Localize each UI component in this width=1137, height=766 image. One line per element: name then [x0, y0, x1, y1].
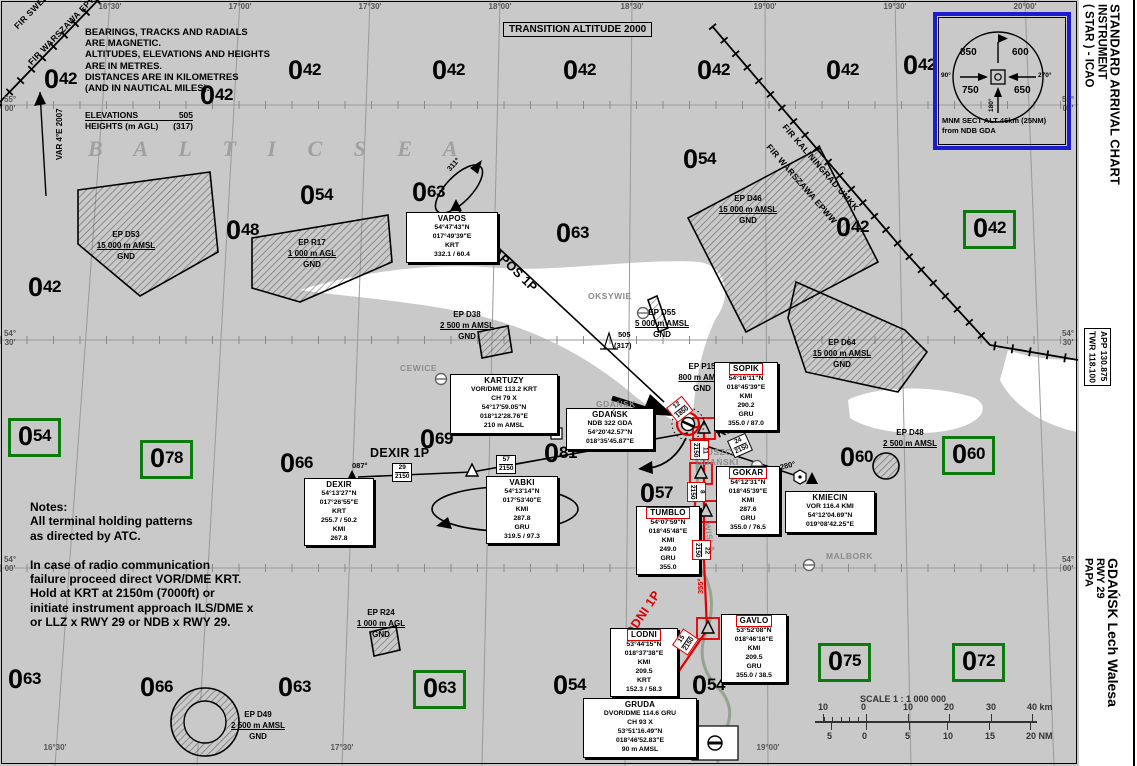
msa-value: 054: [683, 144, 716, 175]
scale-nm-tick: [909, 722, 910, 730]
navaid-box-line: 319.5 / 97.3: [488, 533, 556, 542]
latitude-label: 54°30': [2, 330, 18, 348]
fix-distance-altitude-box: 112150: [690, 440, 709, 460]
waypoint-name: DEXIR: [306, 480, 372, 490]
msa-value: 048: [226, 215, 259, 246]
msa-big-digit: 0: [226, 215, 241, 245]
msa-small-digits: 63: [23, 669, 41, 688]
place-name: CEWICE: [400, 363, 437, 373]
area-label-ep-d49: EP D492 500 m AMSLGND: [218, 710, 298, 742]
scale-nm-tick: [866, 722, 867, 730]
area-label-line: EP D64: [800, 338, 884, 349]
navaid-box-line: 017°26'55"E: [306, 499, 372, 508]
longitude-label: 19°00': [756, 744, 780, 753]
area-label-line: EP R17: [272, 238, 352, 249]
navaid-box-line: GRU: [723, 663, 785, 672]
msa-value: 042: [432, 55, 465, 86]
magnetic-note: BEARINGS, TRACKS AND RADIALSARE MAGNETIC…: [85, 27, 270, 94]
navaid-box-line: KRT: [306, 508, 372, 517]
msa-bearing-90: 90°: [941, 72, 951, 79]
procedure-note-line: Hold at KRT at 2150m (7000ft) or: [30, 586, 253, 600]
navaid-box-line: 54°20'42.57"N: [568, 429, 652, 438]
msa-value: 063: [8, 664, 41, 695]
msa-sector-sw: 750: [962, 85, 979, 96]
msa-value: 042: [28, 272, 61, 303]
scale-km-tick: [1032, 714, 1033, 722]
area-label-line: EP R24: [342, 608, 420, 619]
navaid-box-line: 54°12'31"N: [718, 479, 778, 488]
msa-bearing-180: 180°: [988, 99, 995, 112]
lat-minutes: 30': [2, 339, 18, 348]
route-label: 355°: [696, 578, 705, 594]
area-label-line: GND: [706, 216, 790, 227]
msa-value: 042: [903, 50, 936, 81]
navaid-box-line: VOR 116.4 KMI: [787, 503, 873, 512]
area-label-line: EP D53: [86, 230, 166, 241]
navaid-box-line: 290.2: [716, 402, 776, 411]
msa-small-digits: 54: [33, 426, 51, 445]
area-label-line: 15 000 m AMSL: [706, 205, 790, 216]
magnetic-note-line: ALTITUDES, ELEVATIONS AND HEIGHTS: [85, 49, 270, 60]
area-label-line: 2 500 m AMSL: [872, 439, 948, 450]
navaid-box-line: 54°12'04.69"N: [787, 512, 873, 521]
scale-nm-tick: [831, 722, 832, 730]
procedure-note-line: as directed by ATC.: [30, 529, 253, 543]
navaid-box-line: 018°12'28.76"E: [452, 413, 556, 422]
msa-value: 063: [413, 670, 466, 709]
page-edge-line: [1133, 0, 1135, 766]
msa-small-digits: 63: [427, 182, 445, 201]
scale-nm-label: 20 NM: [1026, 731, 1053, 741]
msa-small-digits: 66: [155, 677, 173, 696]
area-label-line: GND: [622, 330, 702, 341]
msa-value: 042: [826, 55, 859, 86]
scale-nm-tick: [947, 722, 948, 730]
msa-small-digits: 42: [988, 218, 1006, 237]
procedure-note-line: In case of radio communication: [30, 558, 253, 572]
msa-caption-line1: MNM SECT ALT 46km (25NM): [942, 116, 1046, 125]
navaid-box-line: 018°46'52.83"E: [585, 737, 695, 746]
area-label-line: GND: [272, 260, 352, 271]
scale-nm-tick: [1030, 722, 1031, 730]
navaid-box-line: 54°16'11"N: [716, 375, 776, 384]
area-label-line: EP D49: [218, 710, 298, 721]
star-chart-page: STANDARD ARRIVAL CHART INSTRUMENT ( STAR…: [0, 0, 1137, 766]
navaid-box-line: NDB 322 GDA: [568, 420, 652, 429]
navaid-box-line: 287.8: [488, 515, 556, 524]
msa-big-digit: 0: [563, 55, 578, 85]
waypoint-name: GDAŃSK: [568, 410, 652, 420]
navaid-box-line: KMI: [488, 506, 556, 515]
navaid-box-line: KMI: [716, 393, 776, 402]
scale-km-tick: [949, 714, 950, 722]
msa-small-digits: 60: [855, 447, 873, 466]
scale-nm-label: 15: [985, 731, 995, 741]
navaid-box-gokar: GOKAR54°12'31"N018°45'39"EKMI287.6GRU355…: [716, 466, 780, 535]
fix-altitude: 2150: [691, 443, 699, 457]
magnetic-note-line: BEARINGS, TRACKS AND RADIALS: [85, 27, 270, 38]
msa-value: 057: [640, 478, 673, 509]
navaid-box-line: KMI: [306, 526, 372, 535]
navaid-box-line: 54°13'27"N: [306, 490, 372, 499]
navaid-box-line: 355.0 / 76.5: [718, 524, 778, 533]
msa-big-digit: 0: [952, 439, 967, 469]
fix-distance: 57: [499, 456, 513, 465]
chart-title-line2: INSTRUMENT: [1095, 4, 1108, 464]
msa-value: 066: [140, 672, 173, 703]
navaid-box-line: CH 79 X: [452, 395, 556, 404]
msa-value: 063: [278, 672, 311, 703]
navaid-box-line: 355.0: [638, 564, 698, 573]
chart-code: PAPA: [1082, 558, 1094, 763]
navaid-box-dexir: DEXIR54°13'27"N017°26'55"EKRT255.7 / 50.…: [304, 478, 374, 546]
navaid-box-line: 249.0: [638, 546, 698, 555]
msa-big-digit: 0: [973, 213, 988, 243]
msa-value: 072: [952, 643, 1005, 682]
msa-big-digit: 0: [18, 421, 33, 451]
longitude-label: 19°30': [883, 3, 907, 12]
magnetic-variation-label: VAR 4°E 2007: [55, 108, 64, 160]
msa-value: 075: [818, 643, 871, 682]
area-label-line: 15 000 m AMSL: [800, 349, 884, 360]
msa-value: 054: [300, 180, 333, 211]
msa-small-digits: 42: [851, 217, 869, 236]
lat-minutes: 00': [2, 105, 18, 114]
area-label-line: GND: [86, 252, 166, 263]
msa-value: 042: [44, 64, 77, 95]
scale-km-label: 10: [903, 702, 913, 712]
scale-minor-tick: [849, 717, 850, 722]
msa-big-digit: 0: [683, 144, 698, 174]
area-label-line: 1 000 m AGL: [272, 249, 352, 260]
heights-label: HEIGHTS (m AGL): [85, 121, 158, 131]
elevations-label: ELEVATIONS: [85, 110, 138, 120]
waypoint-name: GAVLO: [736, 615, 773, 627]
procedure-note-line: initiate instrument approach ILS/DME x: [30, 601, 253, 615]
msa-big-digit: 0: [28, 272, 43, 302]
scale-km-label: 0: [861, 702, 866, 712]
msa-big-digit: 0: [150, 443, 165, 473]
msa-small-digits: 42: [841, 60, 859, 79]
frequency-box: APP 130.875 TWR 118.100: [1084, 328, 1111, 386]
navaid-box-line: KMI: [638, 537, 698, 546]
navaid-box-sopik: SOPIK54°16'11"N018°45'39"EKMI290.2GRU355…: [714, 362, 778, 431]
msa-big-digit: 0: [8, 664, 23, 694]
msa-big-digit: 0: [300, 180, 315, 210]
airport-title: GDAŃSK Lech Walesa RWY 29 PAPA: [1082, 558, 1120, 763]
navaid-box-line: DVOR/DME 114.6 GRU: [585, 710, 695, 719]
area-label-ep-d48: EP D482 500 m AMSL: [872, 428, 948, 450]
longitude-label: 17°30': [358, 3, 382, 12]
area-label-line: 15 000 m AMSL: [86, 241, 166, 252]
area-label-line: GND: [342, 630, 420, 641]
navaid-box-line: 54°07'59"N: [638, 519, 698, 528]
navaid-box-line: GRU: [718, 515, 778, 524]
fix-altitude: 2150: [499, 465, 513, 473]
msa-value: 054: [553, 670, 586, 701]
area-label-ep-d53: EP D5315 000 m AMSLGND: [86, 230, 166, 262]
waypoint-name: GOKAR: [729, 467, 768, 479]
area-label-line: EP D38: [428, 310, 506, 321]
navaid-box-line: 287.6: [718, 506, 778, 515]
navaid-box-line: 018°45'48"E: [638, 528, 698, 537]
msa-small-digits: 78: [165, 448, 183, 467]
area-label-line: EP D55: [622, 308, 702, 319]
lat-minutes: 00': [2, 565, 18, 574]
procedure-note-line: or LLZ x RWY 29 or NDB x RWY 29.: [30, 615, 253, 629]
navaid-box-kmiecin: KMIECINVOR 116.4 KMI54°12'04.69"N019°08'…: [785, 491, 875, 533]
area-label-ep-d38: EP D382 500 m AMSLGND: [428, 310, 506, 342]
navaid-box-line: 210 m AMSL: [452, 422, 556, 431]
procedure-note-line: All terminal holding patterns: [30, 514, 253, 528]
navaid-box-line: 018°45'39"E: [716, 384, 776, 393]
msa-big-digit: 0: [903, 50, 918, 80]
navaid-box-kartuzy: KARTUZYVOR/DME 113.2 KRTCH 79 X54°17'59.…: [450, 374, 558, 434]
area-label-ep-r17: EP R171 000 m AGLGND: [272, 238, 352, 270]
navaid-box-line: CH 93 X: [585, 719, 695, 728]
msa-small-digits: 57: [655, 483, 673, 502]
msa-sector-nw: 850: [960, 47, 977, 58]
area-label-ep-r24: EP R241 000 m AGLGND: [342, 608, 420, 640]
fix-distance-altitude-box: 572150: [496, 455, 516, 474]
chart-title-line1: STANDARD ARRIVAL CHART: [1107, 4, 1121, 464]
msa-big-digit: 0: [692, 670, 707, 700]
procedure-note-line: Notes:: [30, 500, 253, 514]
chart-title: STANDARD ARRIVAL CHART INSTRUMENT ( STAR…: [1082, 4, 1122, 464]
navaid-box-line: GRU: [488, 524, 556, 533]
fix-distance: 11: [699, 443, 708, 457]
runway-label: RWY 29: [1094, 558, 1106, 763]
longitude-label: 17°00': [228, 3, 252, 12]
route-label: DEXIR 1P: [370, 446, 429, 460]
twr-frequency: TWR 118.100: [1086, 331, 1097, 383]
waypoint-name: KMIECIN: [787, 493, 873, 503]
scale-nm-label: 5: [827, 731, 832, 741]
navaid-box-line: 54°13'14"N: [488, 488, 556, 497]
area-label-ep-d55: EP D555 000 m AMSLGND: [622, 308, 702, 340]
area-label-line: 2 500 m AMSL: [428, 321, 506, 332]
msa-value: 054: [8, 418, 61, 457]
msa-caption-line2: from NDB GDA: [942, 126, 996, 135]
navaid-box-vabki: VABKI54°13'14"N017°53'40"EKMI287.8GRU319…: [486, 476, 558, 544]
navaid-box-line: KRT: [408, 242, 496, 251]
msa-small-digits: 54: [568, 675, 586, 694]
navaid-box-line: 53°51'16.49"N: [585, 728, 695, 737]
vistula-lagoon-water: [848, 389, 983, 434]
msa-small-digits: 42: [43, 277, 61, 296]
navaid-box-gdansk-ndb: GDAŃSKNDB 322 GDA54°20'42.57"N018°35'45.…: [566, 408, 654, 450]
msa-big-digit: 0: [278, 672, 293, 702]
navaid-box-line: 53°44'15"N: [612, 641, 676, 650]
place-name: OKSYWIE: [588, 291, 632, 301]
waypoint-name: LODNI: [627, 629, 661, 641]
scale-km-tick: [908, 714, 909, 722]
fix-altitude: 2150: [395, 473, 409, 481]
navaid-box-gruda: GRUDADVOR/DME 114.6 GRUCH 93 X53°51'16.4…: [583, 698, 697, 758]
navaid-box-line: 152.3 / 58.3: [612, 686, 676, 695]
longitude-label: 16°30': [98, 3, 122, 12]
navaid-box-line: 017°53'40"E: [488, 497, 556, 506]
waypoint-name: SOPIK: [729, 363, 763, 375]
navaid-box-line: VOR/DME 113.2 KRT: [452, 386, 556, 395]
longitude-label: 17°30': [330, 744, 354, 753]
scale-km-tick: [991, 714, 992, 722]
scale-minor-tick: [832, 717, 833, 722]
chart-title-line3: ( STAR ) - ICAO: [1082, 4, 1095, 464]
longitude-label: 16°30': [43, 744, 67, 753]
msa-value: 063: [412, 177, 445, 208]
magnetic-note-line: (AND IN NAUTICAL MILES).: [85, 83, 270, 94]
fix-distance: 22: [701, 543, 710, 557]
scale-nm-label: 0: [862, 731, 867, 741]
place-name: MALBORK: [826, 551, 873, 561]
elevations-value: 505: [179, 110, 193, 120]
msa-value: 042: [563, 55, 596, 86]
msa-big-digit: 0: [432, 55, 447, 85]
msa-big-digit: 0: [544, 438, 559, 468]
msa-sector-se: 650: [1014, 85, 1031, 96]
msa-small-digits: 48: [241, 220, 259, 239]
msa-big-digit: 0: [44, 64, 59, 94]
procedure-note-line: [30, 543, 253, 557]
msa-value: 063: [556, 218, 589, 249]
msa-value: 060: [942, 436, 995, 475]
navaid-box-line: 267.8: [306, 535, 372, 544]
area-label-line: GND: [428, 332, 506, 343]
area-label-line: 2 500 m AMSL: [218, 721, 298, 732]
area-label-line: 1 000 m AGL: [342, 619, 420, 630]
scale-nm-label: 10: [943, 731, 953, 741]
navaid-box-line: 018°35'45.87"E: [568, 438, 652, 447]
navaid-box-line: 332.1 / 60.4: [408, 251, 496, 260]
scale-minor-tick: [858, 717, 859, 722]
navaid-box-line: KRT: [612, 677, 676, 686]
area-label-line: EP D48: [872, 428, 948, 439]
longitude-label: 20°00': [1013, 3, 1037, 12]
baltic-sea-label: B A L T I C S E A: [88, 136, 470, 162]
msa-big-digit: 0: [556, 218, 571, 248]
waypoint-name: GRUDA: [585, 700, 695, 710]
navaid-box-line: 017°49'39"E: [408, 233, 496, 242]
msa-small-digits: 42: [578, 60, 596, 79]
msa-small-digits: 42: [303, 60, 321, 79]
msa-big-digit: 0: [828, 646, 843, 676]
msa-value: 042: [836, 212, 869, 243]
waypoint-name: KARTUZY: [452, 376, 556, 386]
scale-minor-tick: [841, 717, 842, 722]
elevation-legend: ELEVATIONS 505 HEIGHTS (m AGL) (317): [85, 110, 193, 131]
msa-value: 066: [280, 448, 313, 479]
area-label-line: GND: [218, 732, 298, 743]
area-label-ep-d46: EP D4615 000 m AMSLGND: [706, 194, 790, 226]
navaid-box-line: KMI: [723, 645, 785, 654]
navaid-box-line: GRU: [716, 411, 776, 420]
navaid-box-line: 209.5: [723, 654, 785, 663]
area-label-line: EP D46: [706, 194, 790, 205]
msa-value: 042: [288, 55, 321, 86]
app-frequency: APP 130.875: [1097, 331, 1108, 383]
msa-value: 042: [697, 55, 730, 86]
msa-value: 054: [692, 670, 725, 701]
navaid-box-tumblo: TUMBLO54°07'59"N018°45'48"EKMI249.0GRU35…: [636, 506, 700, 575]
navaid-box-vapos: VAPOS54°47'43"N017°49'39"EKRT332.1 / 60.…: [406, 212, 498, 263]
msa-value: 042: [963, 210, 1016, 249]
lat-minutes: 00': [1060, 565, 1076, 574]
scale-nm-tick: [989, 722, 990, 730]
scale-km-label: 40 km: [1027, 702, 1053, 712]
navaid-box-line: 018°46'16"E: [723, 636, 785, 645]
msa-big-digit: 0: [840, 442, 855, 472]
fix-altitude: 2150: [693, 543, 701, 557]
msa-small-digits: 42: [59, 69, 77, 88]
transition-altitude-box: TRANSITION ALTITUDE 2000: [503, 22, 652, 37]
navaid-box-line: 018°37'38"E: [612, 650, 676, 659]
longitude-label: 18°30': [620, 3, 644, 12]
msa-small-digits: 75: [843, 651, 861, 670]
fix-distance-altitude-box: 82150: [687, 482, 706, 502]
scale-km-label: 20: [944, 702, 954, 712]
scale-km-label: 30: [986, 702, 996, 712]
msa-big-digit: 0: [280, 448, 295, 478]
latitude-label: 54°00': [2, 556, 18, 574]
navaid-box-line: 53°52'08"N: [723, 627, 785, 636]
msa-big-digit: 0: [412, 177, 427, 207]
msa-small-digits: 72: [977, 651, 995, 670]
msa-value: 060: [840, 442, 873, 473]
scale-nm-label: 5: [905, 731, 910, 741]
msa-small-digits: 63: [571, 223, 589, 242]
navaid-box-line: KMI: [718, 497, 778, 506]
msa-small-digits: 63: [293, 677, 311, 696]
navaid-box-lodni: LODNI53°44'15"N018°37'38"EKMI209.5KRT152…: [610, 628, 678, 697]
msa-sector-ne: 600: [1012, 47, 1029, 58]
navaid-box-line: KMI: [612, 659, 676, 668]
msa-big-digit: 0: [826, 55, 841, 85]
navaid-box-line: 54°47'43"N: [408, 224, 496, 233]
scale-km-label: 10: [818, 702, 828, 712]
navaid-box-gavlo: GAVLO53°52'08"N018°46'16"EKMI209.5GRU355…: [721, 614, 787, 683]
fix-distance: 29: [395, 464, 409, 473]
msa-small-digits: 54: [315, 185, 333, 204]
scale-km-tick: [866, 714, 867, 722]
msa-small-digits: 42: [712, 60, 730, 79]
navaid-box-line: 355.0 / 38.5: [723, 672, 785, 681]
navaid-box-line: 255.7 / 50.2: [306, 517, 372, 526]
magnetic-note-line: ARE IN METRES.: [85, 61, 270, 72]
msa-big-digit: 0: [640, 478, 655, 508]
navaid-box-line: GRU: [638, 555, 698, 564]
navaid-box-line: 90 m AMSL: [585, 746, 695, 755]
msa-small-digits: 54: [698, 149, 716, 168]
longitude-label: 19°00': [753, 3, 777, 12]
obstacle-height: (317): [614, 341, 632, 350]
scale-minor-tick: [824, 717, 825, 722]
waypoint-name: TUMBLO: [646, 507, 689, 519]
magnetic-note-line: DISTANCES ARE IN KILOMETRES: [85, 72, 270, 83]
navaid-box-line: 54°17'59.05"N: [452, 404, 556, 413]
fix-distance-altitude-box: 222150: [692, 540, 711, 560]
msa-big-digit: 0: [140, 672, 155, 702]
lat-minutes: 30': [1060, 339, 1076, 348]
msa-big-digit: 0: [836, 212, 851, 242]
procedure-note-line: failure proceed direct VOR/DME KRT.: [30, 572, 253, 586]
latitude-label: 55°00': [2, 96, 18, 114]
msa-small-digits: 42: [447, 60, 465, 79]
msa-big-digit: 0: [962, 646, 977, 676]
airport-name: GDAŃSK Lech Walesa: [1105, 558, 1120, 763]
latitude-label: 54°00': [1060, 556, 1076, 574]
msa-big-digit: 0: [697, 55, 712, 85]
